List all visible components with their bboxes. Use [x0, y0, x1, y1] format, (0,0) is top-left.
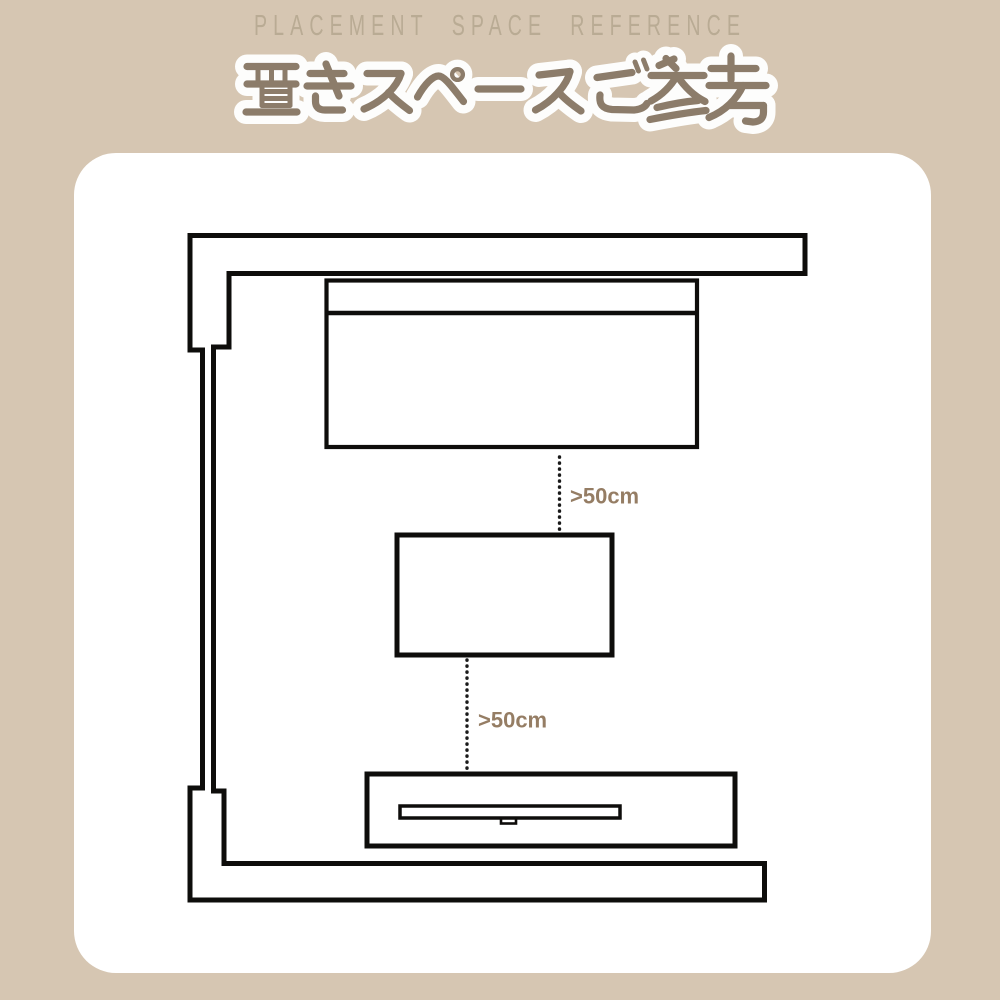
svg-text:>50cm: >50cm: [570, 484, 639, 509]
svg-text:>50cm: >50cm: [478, 708, 547, 733]
